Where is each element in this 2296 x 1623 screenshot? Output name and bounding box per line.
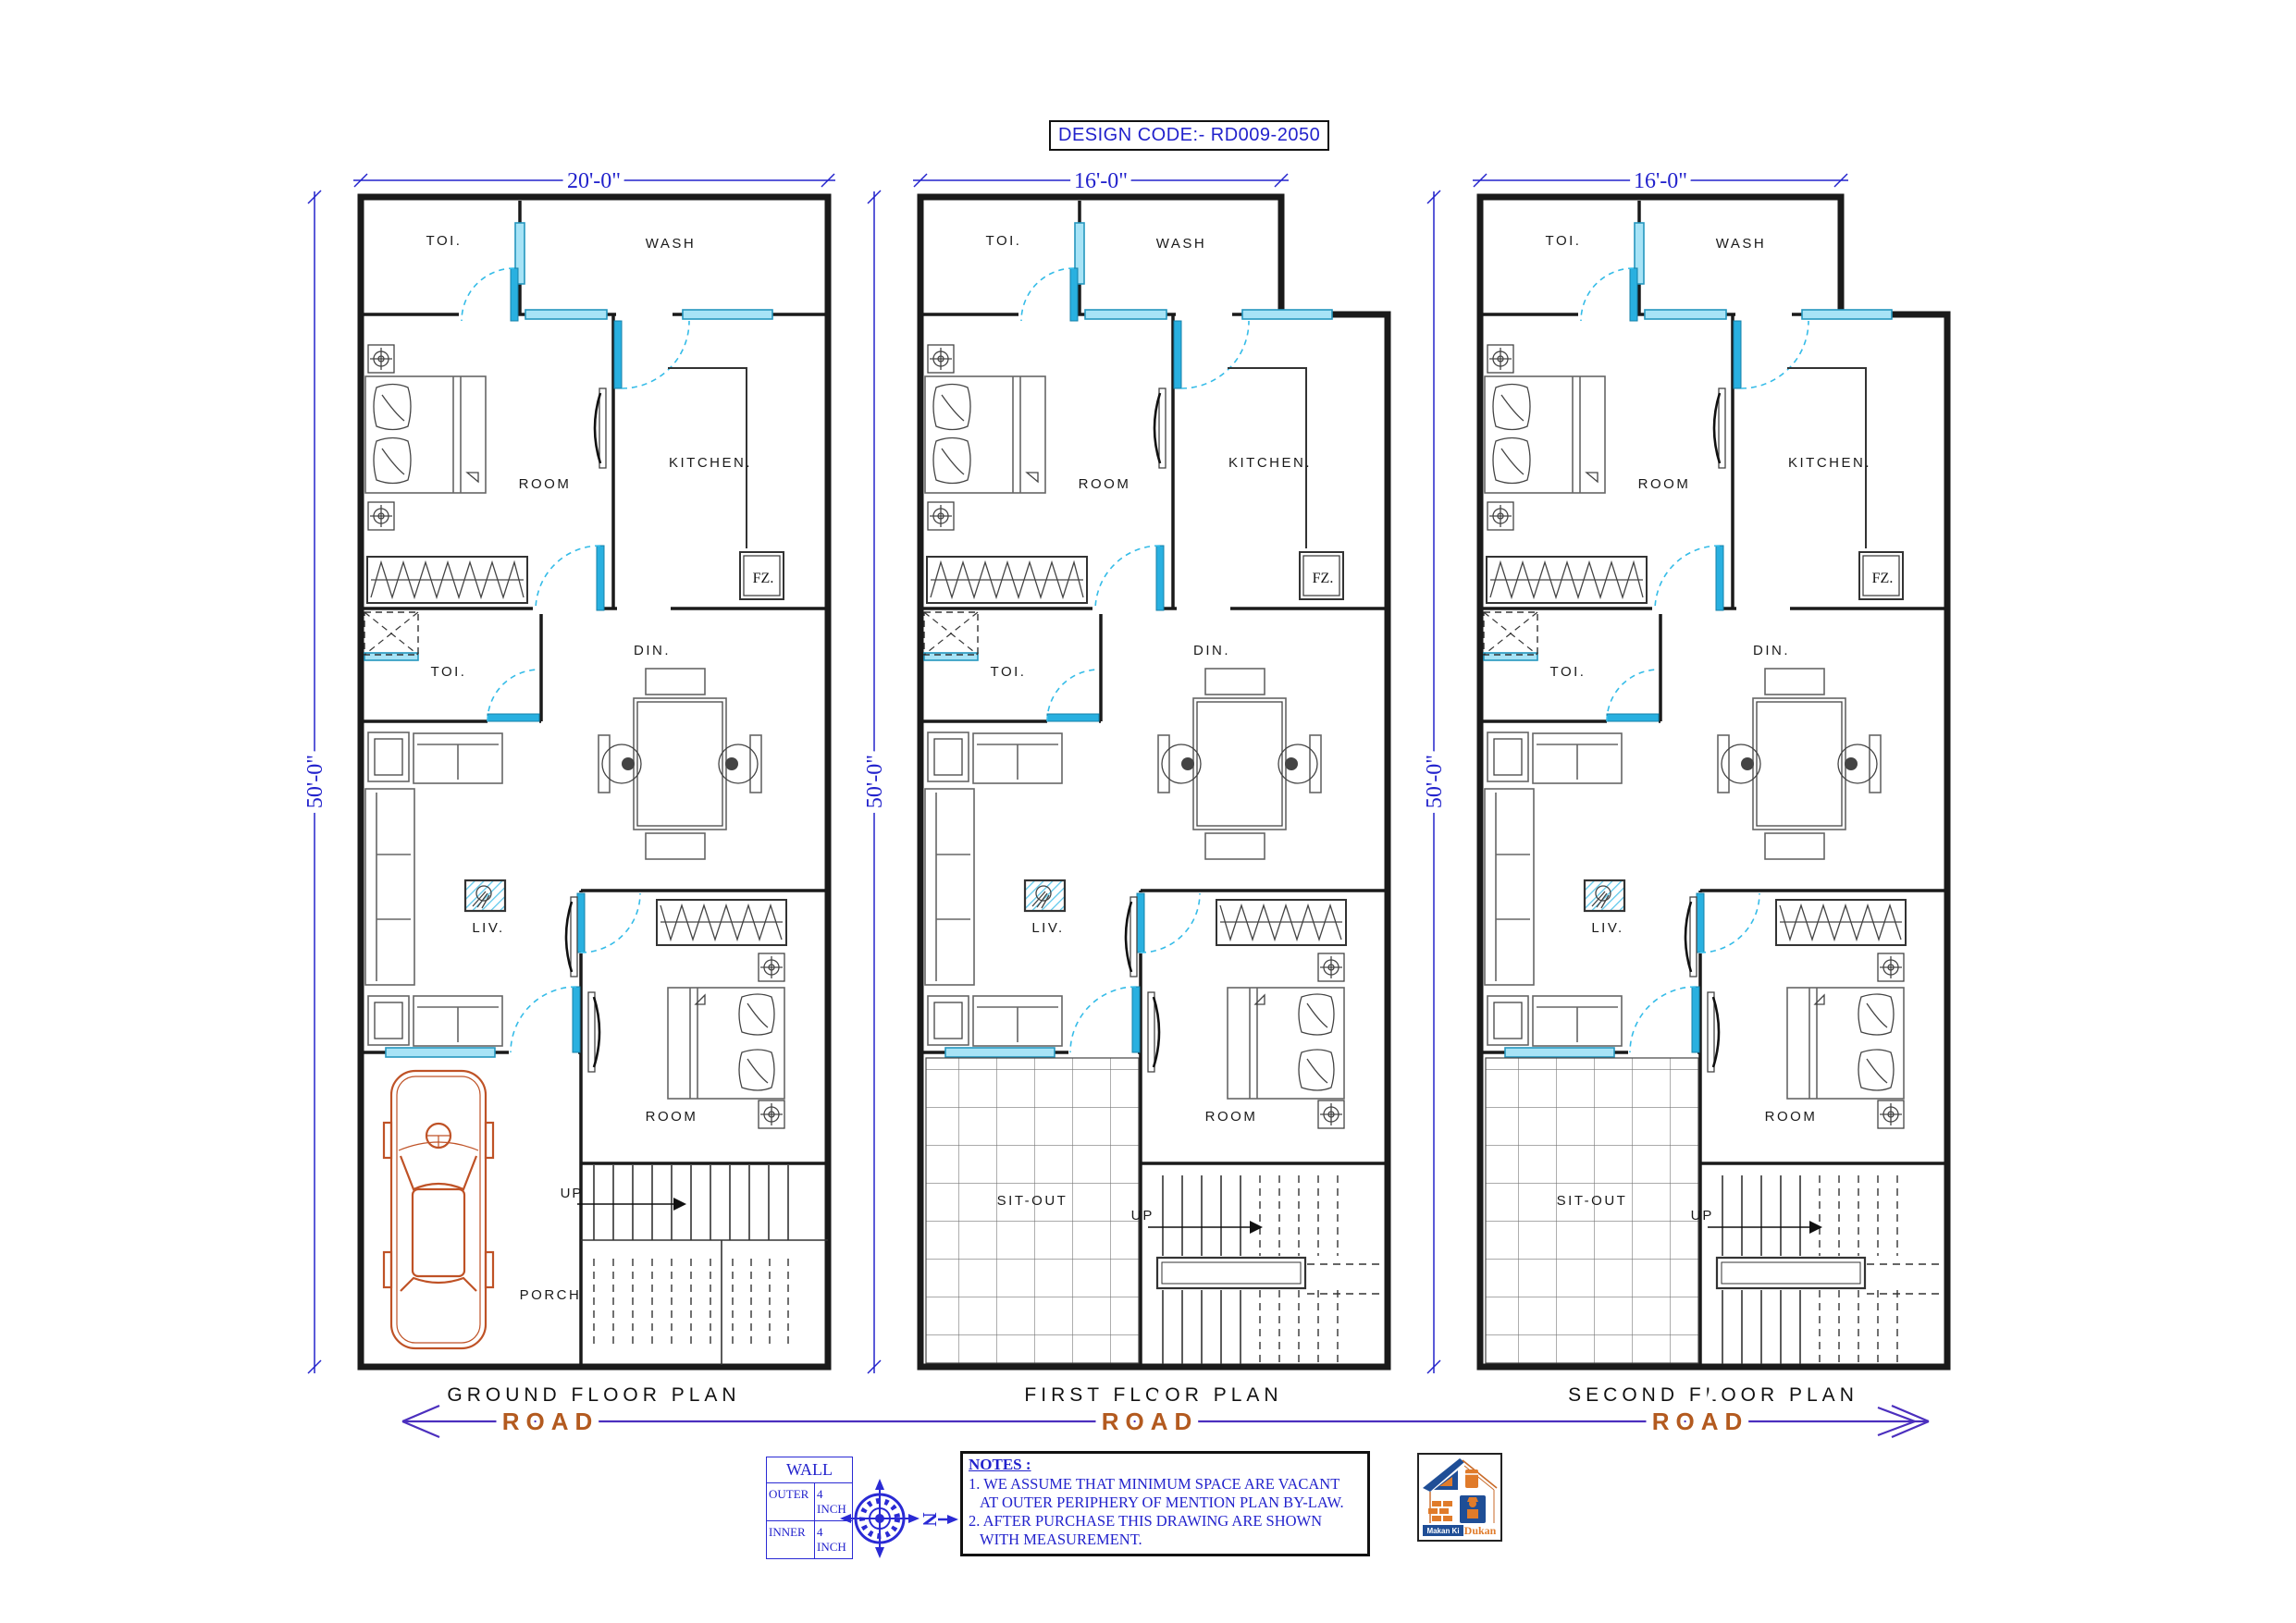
notes-line: AT OUTER PERIPHERY OF MENTION PLAN BY-LA…: [969, 1494, 1362, 1512]
notes-line: 1. WE ASSUME THAT MINIMUM SPACE ARE VACA…: [969, 1475, 1362, 1494]
wall-row-name: INNER: [767, 1521, 815, 1558]
road-line: ROAD ROAD ROAD: [352, 1398, 2063, 1446]
notes-title: NOTES :: [969, 1456, 1362, 1474]
compass-icon: N: [835, 1477, 960, 1562]
notes-line: 2. AFTER PURCHASE THIS DRAWING ARE SHOWN: [969, 1512, 1362, 1531]
blueprint-sheet: TOI. ROOM KITCHEN. FZ. TOI. DIN. LIV. RO…: [0, 0, 2296, 1623]
height-dimension: 50'-0": [863, 755, 887, 808]
notes-box: NOTES : 1. WE ASSUME THAT MINIMUM SPACE …: [960, 1451, 1370, 1556]
brand-logo: Makan Ki Dukan: [1417, 1453, 1502, 1542]
road-label: ROAD: [502, 1408, 599, 1435]
road-label: ROAD: [1652, 1408, 1749, 1435]
road-label: ROAD: [1102, 1408, 1199, 1435]
height-dimension: 50'-0": [303, 755, 327, 808]
width-dimension: 16'-0": [1634, 169, 1687, 193]
logo-cement-bag: [1465, 1469, 1478, 1488]
first-floor-plan: WASH 16'-0" 50'-0" FIRST FLOOR PLAN: [842, 151, 1401, 1408]
logo-text-bottom: Dukan: [1464, 1524, 1497, 1536]
ground-floor-plan: WASH 20'-0" 50'-0" GROUND FLOOR PLAN: [282, 151, 842, 1408]
second-floor-plan: WASH 16'-0" 50'-0" SECOND FLOOR PLAN: [1401, 151, 1961, 1408]
design-code-box: DESIGN CODE:- RD009-2050: [1049, 120, 1329, 151]
width-dimension: 16'-0": [1074, 169, 1128, 193]
height-dimension: 50'-0": [1423, 755, 1447, 808]
logo-bricks: [1428, 1501, 1452, 1521]
logo-text-top: Makan Ki: [1426, 1527, 1459, 1535]
notes-line: WITH MEASUREMENT.: [969, 1531, 1362, 1549]
label-wash: WASH: [1716, 236, 1766, 252]
label-wash: WASH: [1156, 236, 1206, 252]
compass-north-letter: N: [919, 1512, 941, 1526]
wall-row-name: OUTER: [767, 1483, 815, 1520]
design-code-text: DESIGN CODE:- RD009-2050: [1058, 125, 1320, 145]
width-dimension: 20'-0": [567, 169, 621, 193]
label-wash: WASH: [646, 236, 696, 252]
north-arrow: [947, 1515, 958, 1524]
